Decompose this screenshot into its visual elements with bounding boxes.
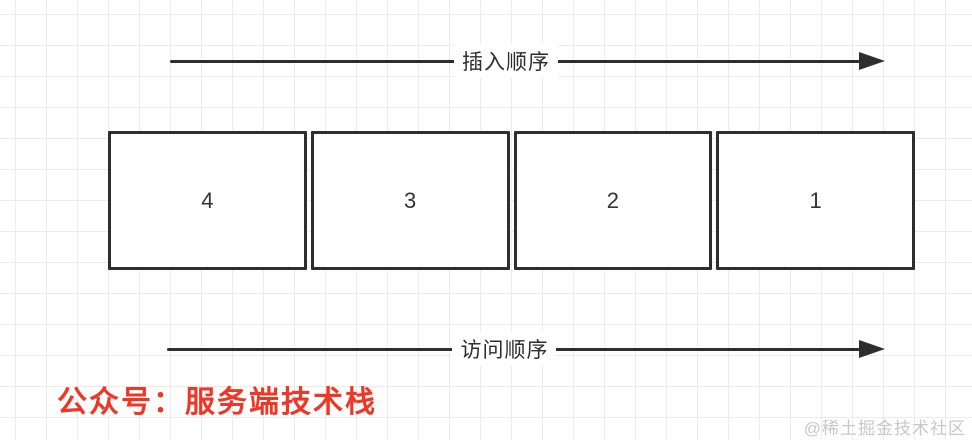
cache-box-2: 2	[514, 131, 713, 270]
insertion-order-arrow: 插入顺序	[170, 52, 885, 70]
juejin-watermark: @稀土掘金技术社区	[804, 414, 966, 439]
cache-box-1: 1	[716, 131, 915, 270]
access-arrow-head-icon	[859, 340, 885, 358]
insertion-arrow-head-icon	[859, 52, 885, 70]
cache-boxes-row: 4 3 2 1	[108, 131, 915, 270]
diagram-canvas: 插入顺序 4 3 2 1 访问顺序 公众号：服务端技术栈 @稀土掘金技术社区	[0, 0, 972, 440]
cache-box-4: 4	[108, 131, 307, 270]
cache-box-3: 3	[311, 131, 510, 270]
access-order-label: 访问顺序	[452, 332, 556, 366]
access-order-arrow: 访问顺序	[167, 340, 885, 358]
wechat-account-caption: 公众号：服务端技术栈	[57, 377, 377, 421]
insertion-order-label: 插入顺序	[454, 44, 558, 78]
